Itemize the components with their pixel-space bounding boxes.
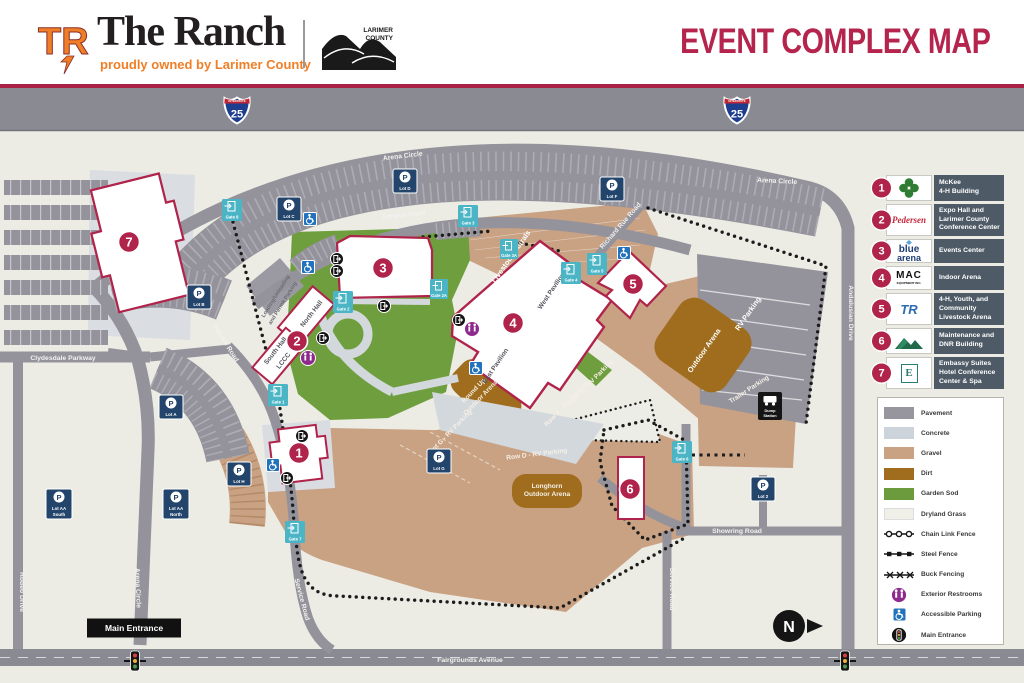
- svg-text:Gate 3: Gate 3: [462, 221, 475, 226]
- embassy-parking-rows: [4, 176, 108, 352]
- legend-steel-fence: Steel Fence: [884, 544, 1003, 564]
- main-entrance-icon: [884, 626, 914, 644]
- legend-label-7: Embassy Suites Hotel Conference Center &…: [934, 357, 1004, 389]
- svg-text:Outdoor Arena: Outdoor Arena: [524, 491, 571, 498]
- lot-marker-c: PLot C: [277, 197, 301, 221]
- lot-marker-f: PLot F: [600, 177, 624, 201]
- legend-buck-fencing: Buck Fencing: [884, 565, 1003, 585]
- dump-station-marker: Dump Station: [758, 392, 782, 420]
- svg-text:Gate 6: Gate 6: [676, 457, 689, 462]
- legend-number-4: 4: [872, 269, 891, 288]
- legend-garden-sod: Garden Sod: [884, 484, 1003, 504]
- svg-text:Lot 2: Lot 2: [758, 494, 769, 499]
- svg-text:Lot B: Lot B: [193, 302, 204, 307]
- steel-fence-icon: [884, 549, 914, 559]
- legend-label-3: Events Center: [934, 239, 1004, 263]
- legend-label-1: McKee 4-H Building: [934, 175, 1004, 201]
- county-logo-line1: LARIMER: [363, 27, 393, 34]
- brand-title: The Ranch: [97, 8, 285, 56]
- svg-text:Lot H: Lot H: [233, 479, 244, 484]
- header-divider: [303, 20, 305, 68]
- lot-marker-aa-north: PLot AANorth: [163, 489, 189, 519]
- buck-fencing-icon: [884, 570, 914, 580]
- complex-map: INTERSTATE 25: [0, 88, 1024, 683]
- tr-monogram: TR: [38, 21, 89, 63]
- svg-text:P: P: [609, 181, 614, 190]
- gate-marker-3a: Gate 3A: [500, 239, 518, 259]
- larimer-county-logo-icon: LARIMER COUNTY: [322, 22, 396, 70]
- svg-text:P: P: [236, 466, 241, 475]
- 4h-clover-logo-icon: [886, 175, 932, 201]
- legend-concrete: Concrete: [884, 423, 1003, 443]
- svg-text:Gate 3A: Gate 3A: [501, 253, 517, 258]
- svg-text:P: P: [168, 399, 173, 408]
- the-ranch-tr-logo-icon: TR: [36, 12, 96, 76]
- accessible-parking-icon: [884, 607, 914, 622]
- svg-text:Lot G: Lot G: [433, 466, 445, 471]
- svg-text:3: 3: [379, 261, 386, 276]
- lot-marker-d: PLot D: [393, 169, 417, 193]
- surface-legend: Pavement Concrete Gravel Dirt Garden Sod…: [877, 397, 1004, 645]
- brand-tagline: proudly owned by Larimer County: [100, 57, 311, 72]
- gate-marker-2: Gate 2: [333, 291, 353, 313]
- gate-marker-4: Gate 4: [561, 262, 581, 284]
- legend-exterior-restrooms: Exterior Restrooms: [884, 585, 1003, 605]
- svg-text:5: 5: [629, 277, 636, 292]
- legend-row-embassy: 7 E Embassy Suites Hotel Conference Cent…: [886, 357, 1004, 389]
- gate-marker-3: Gate 3: [458, 205, 478, 227]
- svg-text:6: 6: [626, 482, 633, 497]
- legend-number-2: 2: [872, 211, 891, 230]
- svg-text:Lot AA: Lot AA: [52, 506, 67, 511]
- svg-text:Rodeo Drive: Rodeo Drive: [18, 572, 25, 612]
- svg-text:P: P: [286, 201, 291, 210]
- svg-text:Main Entrance: Main Entrance: [105, 623, 163, 633]
- county-logo-line2: COUNTY: [366, 35, 394, 42]
- svg-text:Station: Station: [763, 413, 777, 418]
- legend-pavement: Pavement: [884, 403, 1003, 423]
- svg-text:Gate 1: Gate 1: [272, 400, 285, 405]
- gate-marker-5: Gate 5: [587, 253, 607, 275]
- legend-chain-link-fence: Chain Link Fence: [884, 524, 1003, 544]
- svg-text:2: 2: [293, 334, 300, 349]
- legend-number-3: 3: [872, 242, 891, 261]
- tr-blue-logo-icon: TR: [886, 293, 932, 325]
- lot-marker-g: PLot G: [427, 449, 451, 473]
- svg-text:P: P: [436, 453, 441, 462]
- lot-marker-b: PLot B: [187, 285, 211, 309]
- gate-marker-7: Gate 7: [285, 521, 305, 543]
- svg-text:Lot C: Lot C: [283, 214, 295, 219]
- svg-text:Gate 5: Gate 5: [591, 269, 604, 274]
- gate-marker-8: Gate 8: [222, 199, 242, 221]
- lot-marker-a: PLot A: [159, 395, 183, 419]
- svg-text:7: 7: [125, 235, 132, 250]
- legend-row-livestock-arena: 5 TR 4-H, Youth, and Community Livestock…: [886, 293, 1004, 325]
- svg-text:Clydesdale Parkway: Clydesdale Parkway: [30, 355, 96, 362]
- legend-number-1: 1: [872, 179, 891, 198]
- gate-marker-1: Gate 1: [268, 384, 288, 406]
- legend-label-5: 4-H, Youth, and Community Livestock Aren…: [934, 293, 1004, 325]
- svg-text:Longhorn: Longhorn: [532, 483, 563, 490]
- legend-number-5: 5: [872, 300, 891, 319]
- svg-text:Gate 7: Gate 7: [289, 537, 302, 542]
- legend-number-7: 7: [872, 364, 891, 383]
- svg-text:Andalusian Drive: Andalusian Drive: [847, 285, 854, 341]
- interstate-25-road: [0, 88, 1024, 130]
- dnr-mountains-logo-icon: [886, 328, 932, 354]
- svg-text:Lot AA: Lot AA: [169, 506, 184, 511]
- header: TR The Ranch proudly owned by Larimer Co…: [0, 0, 1024, 84]
- pedersen-logo-icon: Pedersen: [886, 204, 932, 236]
- svg-text:Fairgrounds Avenue: Fairgrounds Avenue: [437, 657, 503, 664]
- legend-label-6: Maintenance and DNR Building: [934, 328, 1004, 354]
- lot-marker-aa-south: PLot AASouth: [46, 489, 72, 519]
- gate-marker-6: Gate 6: [672, 441, 692, 463]
- legend-label-2: Expo Hall and Larimer County Conference …: [934, 204, 1004, 236]
- svg-text:North: North: [170, 512, 182, 517]
- svg-text:Lot F: Lot F: [607, 194, 618, 199]
- svg-text:Showring Road: Showring Road: [712, 528, 762, 535]
- chain-link-fence-icon: [884, 529, 914, 539]
- building-legend: 1 McKee 4-H Building 2 Pedersen Expo Hal…: [872, 175, 1004, 392]
- mac-equipment-logo-icon: MAC EQUIPMENT INC.: [886, 266, 932, 290]
- legend-row-mckee: 1 McKee 4-H Building: [886, 175, 1004, 201]
- svg-text:4: 4: [509, 316, 517, 331]
- svg-text:P: P: [56, 493, 61, 502]
- legend-dirt: Dirt: [884, 464, 1003, 484]
- legend-row-events-center: 3 blue arena Events Center: [886, 239, 1004, 263]
- legend-label-4: Indoor Arena: [934, 266, 1004, 290]
- legend-row-indoor-arena: 4 MAC EQUIPMENT INC. Indoor Arena: [886, 266, 1004, 290]
- main-entrance-label: Main Entrance: [87, 619, 181, 638]
- lot-marker-h: PLot H: [227, 462, 251, 486]
- svg-text:P: P: [173, 493, 178, 502]
- svg-text:Gate 8: Gate 8: [226, 215, 239, 220]
- blue-arena-logo-icon: blue arena: [886, 239, 932, 263]
- legend-row-maintenance: 6 Maintenance and DNR Building: [886, 328, 1004, 354]
- svg-text:P: P: [402, 173, 407, 182]
- svg-text:Arena Circle: Arena Circle: [133, 568, 141, 608]
- legend-row-expo: 2 Pedersen Expo Hall and Larimer County …: [886, 204, 1004, 236]
- svg-text:P: P: [196, 289, 201, 298]
- legend-accessible-parking: Accessible Parking: [884, 605, 1003, 625]
- svg-text:Gate 2A: Gate 2A: [431, 293, 447, 298]
- svg-text:P: P: [760, 481, 765, 490]
- svg-text:Lot A: Lot A: [165, 412, 177, 417]
- legend-gravel: Gravel: [884, 443, 1003, 463]
- legend-main-entrance: Main Entrance: [884, 625, 1003, 645]
- legend-dryland-grass: Dryland Grass: [884, 504, 1003, 524]
- svg-text:Gate 4: Gate 4: [565, 278, 578, 283]
- legend-number-6: 6: [872, 332, 891, 351]
- svg-text:South: South: [53, 512, 66, 517]
- svg-text:1: 1: [295, 446, 302, 461]
- embassy-suites-logo-icon: E: [886, 357, 932, 389]
- svg-text:Gate 2: Gate 2: [337, 307, 350, 312]
- svg-text:N: N: [783, 619, 795, 636]
- svg-text:Service Road: Service Road: [668, 567, 675, 610]
- svg-text:Lot D: Lot D: [399, 186, 410, 191]
- gate-marker-2a: Gate 2A: [430, 279, 448, 299]
- page-title: EVENT COMPLEX MAP: [680, 22, 990, 62]
- lot-marker-2: PLot 2: [751, 477, 775, 501]
- restroom-icon: [884, 586, 914, 604]
- event-complex-map-page: TR The Ranch proudly owned by Larimer Co…: [0, 0, 1024, 683]
